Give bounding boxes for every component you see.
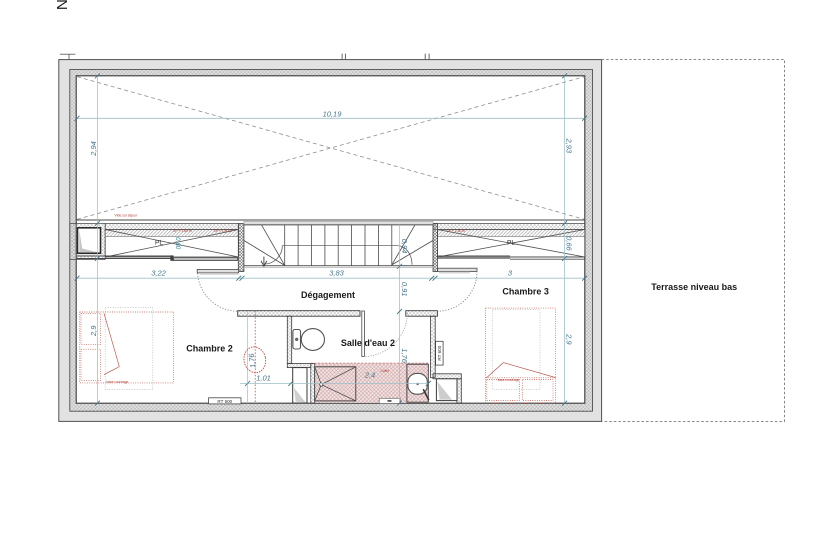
svg-text:0,66: 0,66 (565, 236, 574, 251)
svg-text:1,76: 1,76 (400, 348, 409, 363)
svg-text:SP + 1.80 m: SP + 1.80 m (447, 229, 466, 233)
svg-text:3,22: 3,22 (151, 269, 166, 278)
svg-text:0,60: 0,60 (174, 237, 181, 250)
svg-text:base couchage: base couchage (107, 380, 129, 384)
svg-text:SP + 1.80 m: SP + 1.80 m (173, 229, 192, 233)
svg-text:2,94: 2,94 (89, 141, 98, 157)
svg-text:Chambre 3: Chambre 3 (502, 287, 549, 297)
svg-text:N: N (53, 0, 70, 10)
svg-text:base couchage: base couchage (498, 378, 520, 382)
svg-text:2,9: 2,9 (565, 333, 574, 345)
svg-text:2,4: 2,4 (364, 371, 375, 380)
svg-text:0,91: 0,91 (400, 282, 409, 297)
svg-text:2,93: 2,93 (565, 137, 574, 153)
svg-text:PL: PL (155, 240, 163, 247)
svg-text:Terrasse niveau bas: Terrasse niveau bas (651, 282, 737, 292)
svg-text:Vide sur séjour: Vide sur séjour (115, 213, 138, 217)
svg-text:Dégagement: Dégagement (301, 290, 355, 300)
svg-text:Chambre 2: Chambre 2 (186, 343, 233, 353)
svg-text:1,01: 1,01 (256, 374, 271, 383)
svg-text:Salle d'eau 2: Salle d'eau 2 (341, 338, 395, 348)
svg-text:2,9: 2,9 (89, 325, 98, 337)
svg-text:RT 600: RT 600 (437, 345, 442, 360)
svg-text:10,19: 10,19 (323, 110, 343, 119)
svg-text:RT 600: RT 600 (217, 399, 232, 404)
svg-text:Coffre: Coffre (381, 369, 390, 373)
svg-text:3,83: 3,83 (329, 269, 344, 278)
svg-text:1,76: 1,76 (247, 352, 258, 368)
svg-text:PL: PL (507, 240, 515, 247)
svg-text:0,94: 0,94 (400, 239, 409, 254)
svg-text:SP + 1.80 m: SP + 1.80 m (214, 229, 233, 233)
